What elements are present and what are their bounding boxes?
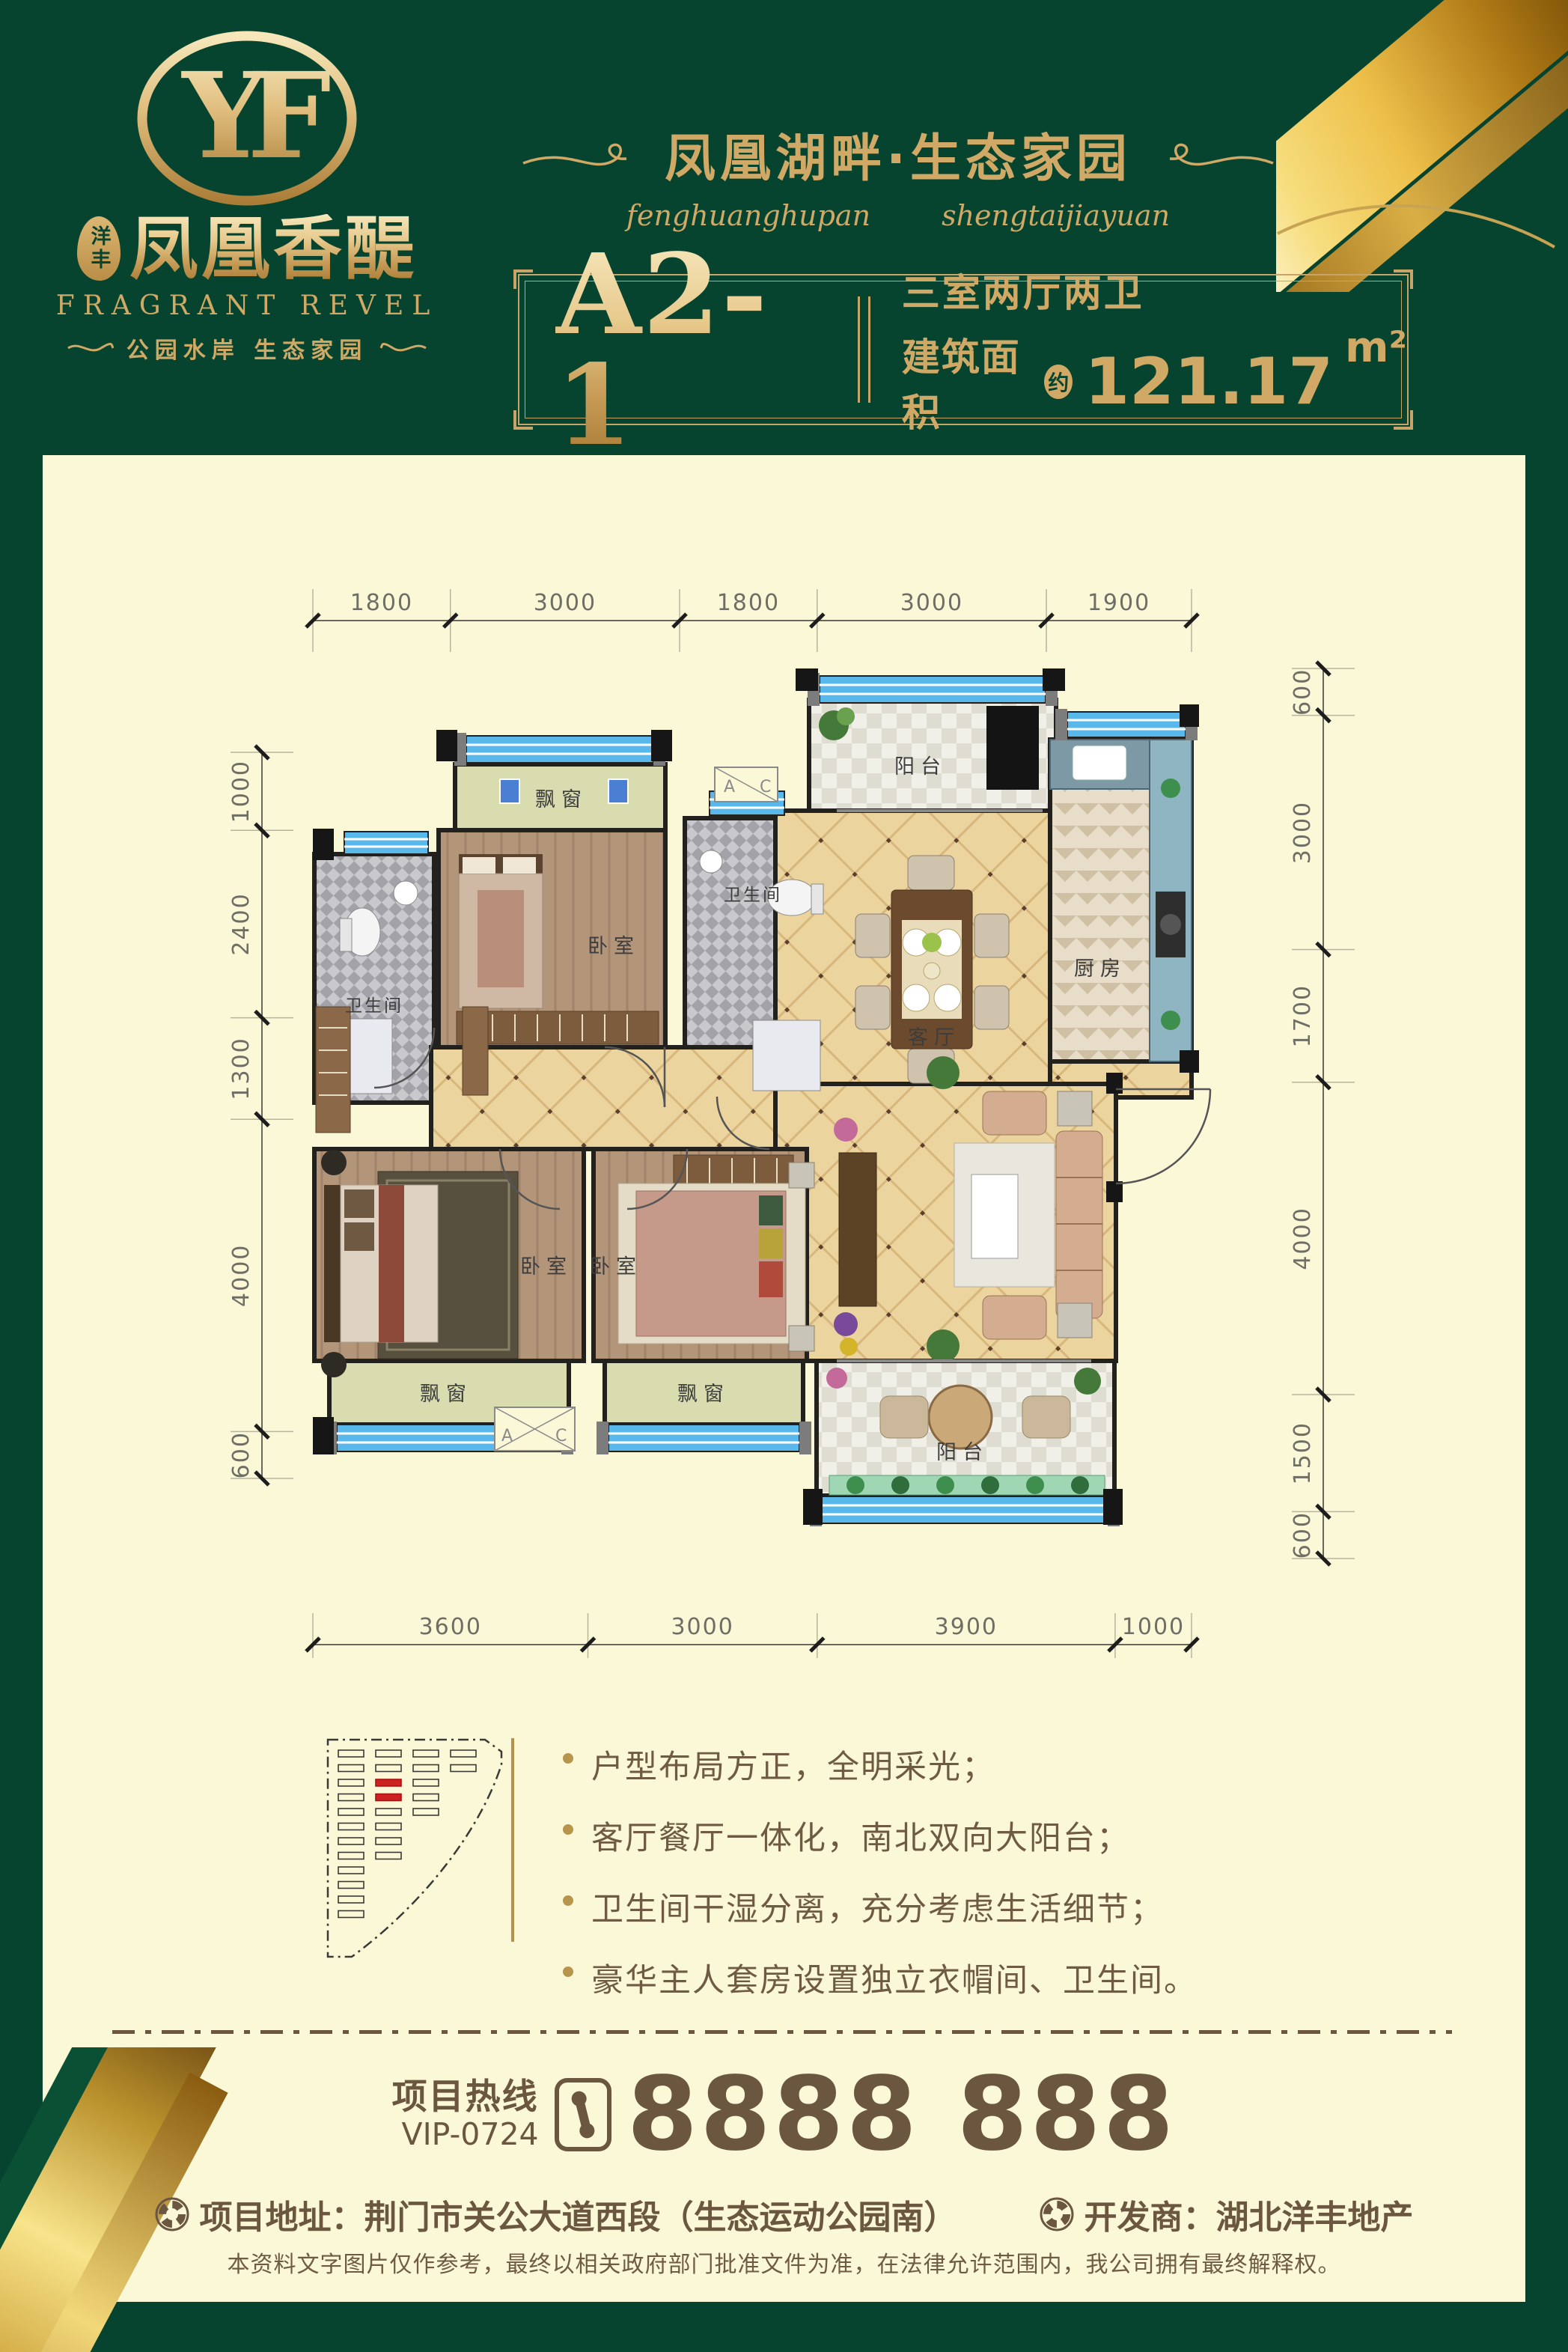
- title-flourish-left-icon: [522, 133, 645, 186]
- lifebuoy-icon: [155, 2197, 189, 2231]
- label-balcony-north: 阳台: [894, 755, 947, 779]
- project-title-pinyin-right: shengtaijiayuan: [942, 199, 1170, 232]
- approx-badge: 约: [1044, 365, 1073, 399]
- svg-text:600: 600: [1290, 668, 1316, 716]
- logo-monogram: YF: [181, 47, 331, 186]
- feature-item: 户型布局方正，全明采光；: [591, 1741, 1400, 1788]
- disclaimer: 本资料文字图片仅作参考，最终以相关政府部门批准文件为准，在法律允许范围内，我公司…: [0, 2246, 1568, 2279]
- svg-text:2400: 2400: [228, 892, 254, 955]
- flourish-right-icon: [379, 339, 427, 357]
- site-key-map: [305, 1723, 522, 1970]
- svg-text:1000: 1000: [228, 760, 254, 823]
- label-balcony-south: 阳台: [936, 1441, 989, 1464]
- feature-list: 户型布局方正，全明采光； 客厅餐厅一体化，南北双向大阳台； 卫生间干湿分离，充分…: [591, 1741, 1400, 2026]
- feature-item: 卫生间干湿分离，充分考虑生活细节；: [591, 1883, 1400, 1930]
- divider: [112, 2030, 1452, 2034]
- unit-code: A2-1: [555, 239, 829, 460]
- address-value: 荆门市关公大道西段（生态运动公园南）: [364, 2199, 957, 2237]
- feature-item: 客厅餐厅一体化，南北双向大阳台；: [591, 1812, 1400, 1859]
- svg-text:A: A: [501, 1427, 513, 1445]
- developer-value: 湖北洋丰地产: [1216, 2199, 1414, 2237]
- closet-bedroom-3: [674, 1155, 793, 1186]
- svg-text:1900: 1900: [1087, 590, 1150, 616]
- dimension-right: 6003000170040001500600: [1290, 662, 1355, 1565]
- ac-marker-bottom: A C: [495, 1407, 575, 1451]
- label-kitchen: 厨房: [1074, 957, 1126, 981]
- label-bedroom-master: 卧室: [588, 935, 640, 958]
- floor-plan: 18003000180030001900 3600300039001000 10…: [210, 565, 1392, 1658]
- dimension-left: 1000240013004000600: [228, 746, 293, 1485]
- svg-text:600: 600: [228, 1431, 254, 1478]
- svg-text:3000: 3000: [671, 1614, 733, 1640]
- ac-marker-top: A C: [715, 767, 778, 802]
- divider: [511, 1738, 514, 1942]
- bedroom-3-items: [618, 1163, 814, 1351]
- poster-page: { "header": { "logo_monogram": "YF", "lo…: [0, 0, 1568, 2352]
- brand-name-en: FRAGRANT REVEL: [52, 290, 442, 321]
- area-value: 121.17: [1085, 350, 1333, 414]
- plan-body: A C A C 阳台 飘窗 卧室 卫生间 卫生间 厨房 客厅 卧室 卧室 飘窗 …: [313, 668, 1210, 1526]
- yf-logo-icon: YF: [131, 28, 363, 210]
- project-title-pinyin-left: fenghuanghupan: [626, 199, 870, 232]
- svg-text:1800: 1800: [717, 590, 780, 616]
- area-unit: m²: [1345, 323, 1407, 372]
- svg-text:600: 600: [1290, 1511, 1316, 1559]
- svg-text:3600: 3600: [419, 1614, 482, 1640]
- feature-item: 豪华主人套房设置独立衣帽间、卫生间。: [591, 1955, 1400, 2001]
- label-bay-bedroom-3: 飘窗: [677, 1383, 730, 1406]
- hotline-vip: VIP-0724: [392, 2118, 539, 2151]
- developer-label: 开发商：: [1085, 2199, 1216, 2237]
- project-title: 凤凰湖畔·生态家园: [665, 134, 1132, 185]
- project-address: 项目地址：荆门市关公大道西段（生态运动公园南）: [155, 2190, 957, 2238]
- key-map-buildings: [338, 1750, 476, 1918]
- hotline-block: 项目热线 VIP-0724 8888 888: [0, 2069, 1568, 2160]
- developer: 开发商：湖北洋丰地产: [1040, 2190, 1414, 2238]
- title-flourish-right-icon: [1151, 133, 1275, 186]
- svg-text:1300: 1300: [228, 1037, 254, 1100]
- svg-text:C: C: [760, 778, 771, 796]
- flourish-left-icon: [67, 339, 115, 357]
- label-bedroom-3: 卧室: [590, 1255, 642, 1279]
- dimension-top: 18003000180030001900: [306, 589, 1198, 652]
- label-bathroom-hall: 卫生间: [724, 886, 782, 905]
- phone-icon: [554, 2077, 612, 2152]
- address-label: 项目地址：: [200, 2199, 364, 2237]
- lifebuoy-icon: [1040, 2197, 1074, 2231]
- svg-text:4000: 4000: [228, 1244, 254, 1307]
- unit-layout: 三室两厅两卫: [902, 262, 1407, 317]
- label-bay-master: 飘窗: [535, 788, 588, 811]
- svg-text:3000: 3000: [534, 590, 597, 616]
- svg-text:1500: 1500: [1290, 1422, 1316, 1484]
- company-seal: 洋丰: [77, 216, 121, 281]
- svg-text:A: A: [724, 778, 735, 796]
- brand-name: 凤凰香醍: [129, 214, 417, 283]
- dimension-bottom: 3600300039001000: [306, 1613, 1198, 1658]
- divider: [858, 296, 870, 403]
- svg-text:1000: 1000: [1122, 1614, 1185, 1640]
- label-bay-bedroom-2: 飘窗: [420, 1383, 472, 1406]
- svg-text:3000: 3000: [900, 590, 963, 616]
- svg-text:C: C: [555, 1427, 567, 1445]
- unit-info-box: A2-1 三室两厅两卫 建筑面积 约 121.17 m²: [518, 274, 1409, 425]
- svg-text:4000: 4000: [1290, 1207, 1316, 1270]
- brand-slogan: 公园水岸 生态家园: [126, 332, 367, 365]
- project-title-block: 凤凰湖畔·生态家园 fenghuanghupan shengtaijiayuan: [423, 133, 1373, 232]
- svg-text:3000: 3000: [1290, 801, 1316, 864]
- label-living: 客厅: [908, 1026, 960, 1049]
- brand-logo-block: YF 洋丰 凤凰香醍 FRAGRANT REVEL 公园水岸 生态家园: [52, 28, 442, 365]
- address-row: 项目地址：荆门市关公大道西段（生态运动公园南） 开发商：湖北洋丰地产: [0, 2190, 1568, 2238]
- area-label: 建筑面积: [902, 326, 1033, 437]
- svg-text:1700: 1700: [1290, 984, 1316, 1047]
- svg-text:1800: 1800: [350, 590, 413, 616]
- svg-text:3900: 3900: [935, 1614, 998, 1640]
- label-bedroom-2: 卧室: [520, 1255, 573, 1279]
- hotline-label: 项目热线: [392, 2079, 539, 2115]
- label-bathroom-master: 卫生间: [345, 996, 403, 1016]
- hotline-number: 8888 888: [627, 2069, 1177, 2160]
